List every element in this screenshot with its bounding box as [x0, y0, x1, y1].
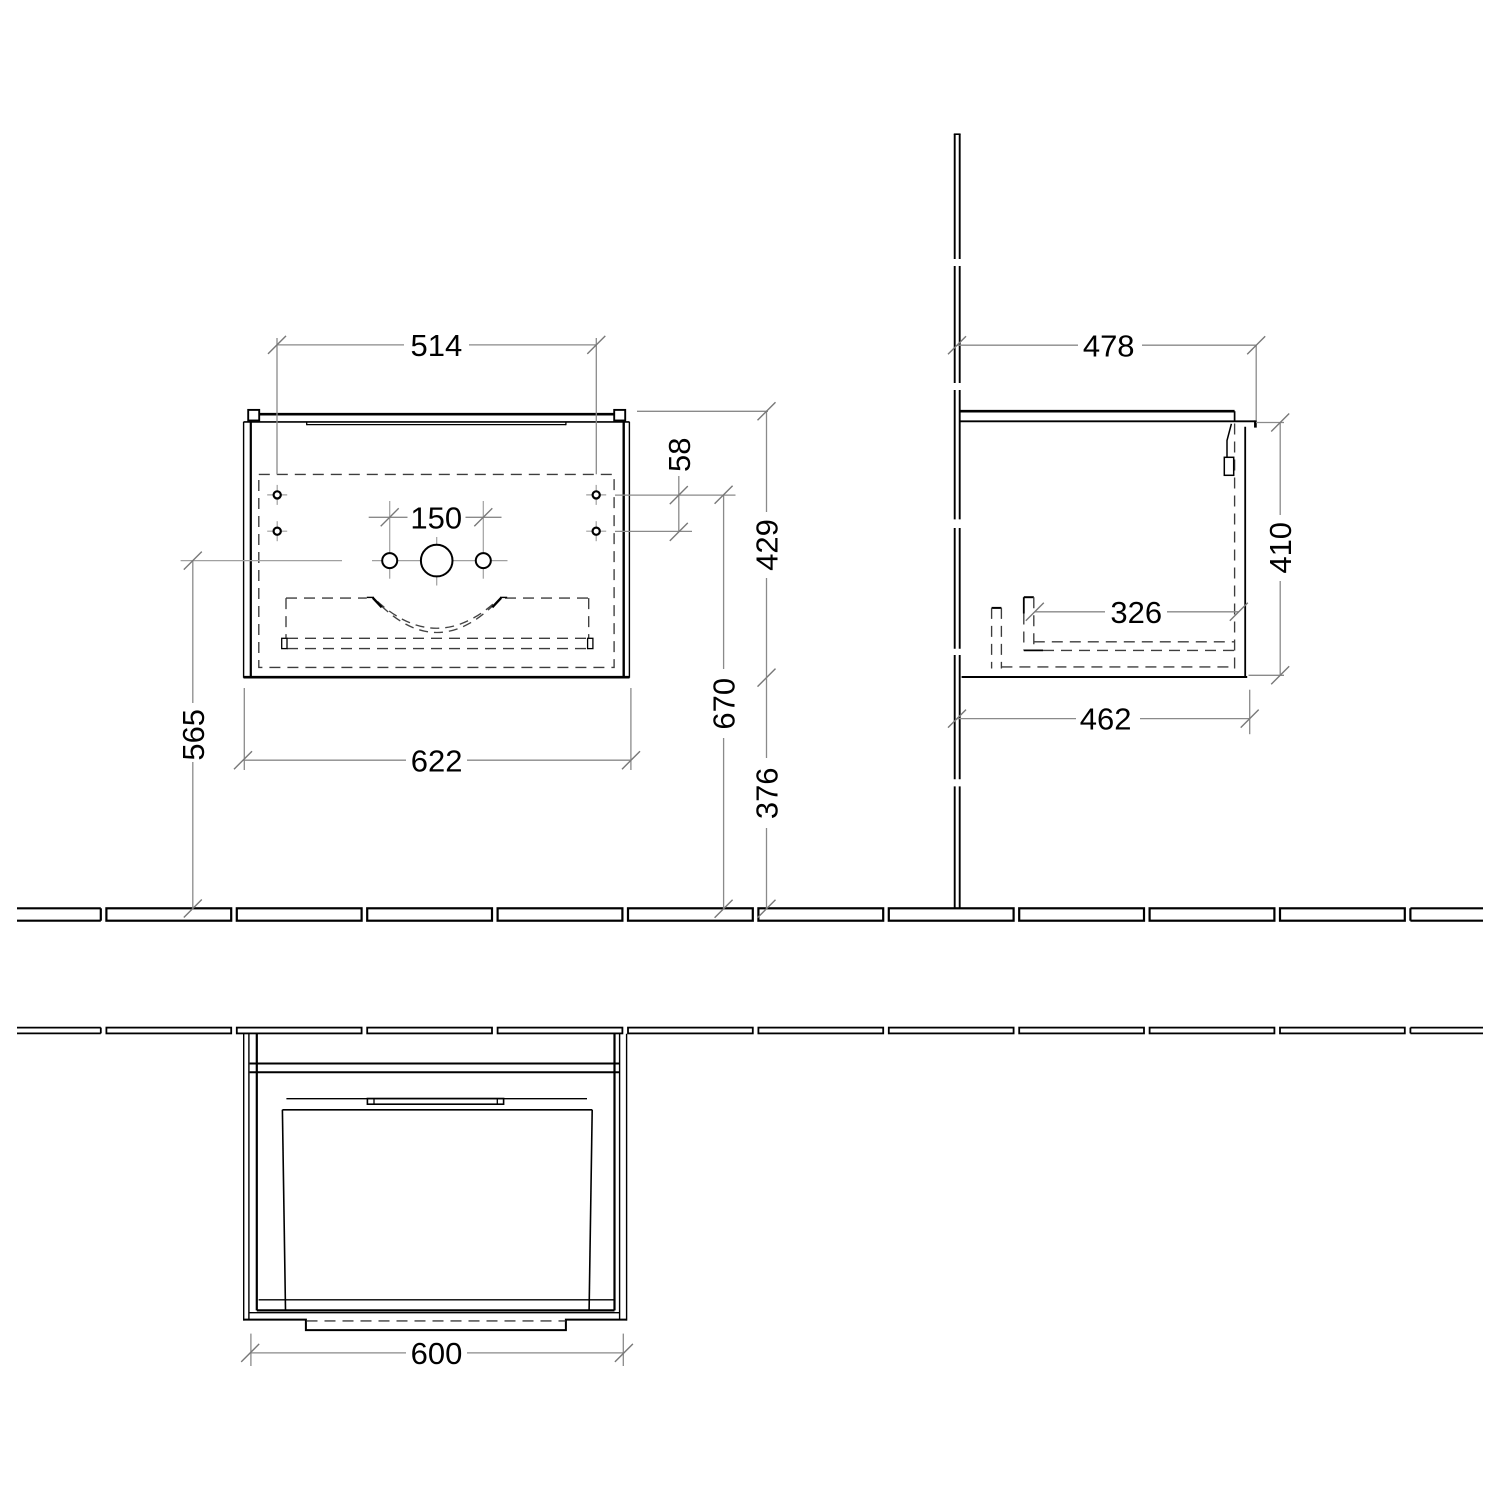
- svg-text:58: 58: [662, 438, 697, 472]
- svg-text:462: 462: [1080, 702, 1132, 737]
- svg-text:410: 410: [1263, 522, 1298, 574]
- svg-text:600: 600: [411, 1336, 463, 1371]
- svg-text:565: 565: [176, 709, 211, 761]
- svg-text:326: 326: [1110, 595, 1162, 630]
- svg-text:622: 622: [411, 744, 463, 779]
- svg-text:150: 150: [410, 500, 462, 535]
- svg-text:670: 670: [707, 678, 742, 730]
- svg-text:514: 514: [411, 328, 463, 363]
- svg-text:376: 376: [750, 767, 785, 819]
- svg-text:429: 429: [750, 519, 785, 571]
- svg-text:478: 478: [1083, 328, 1135, 363]
